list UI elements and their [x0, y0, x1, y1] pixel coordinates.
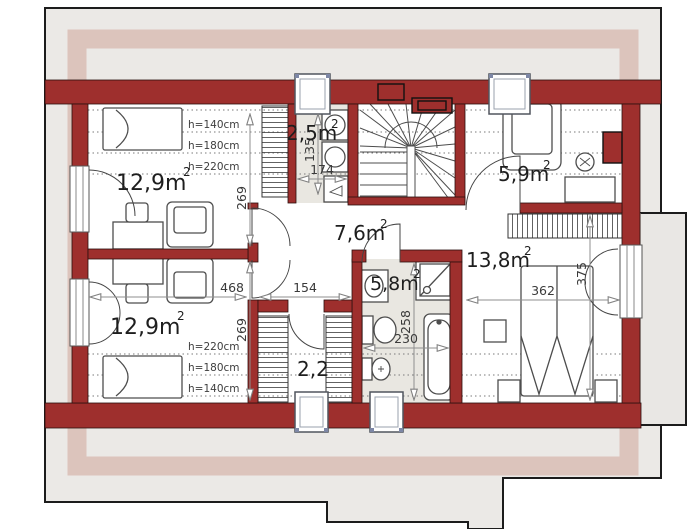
wall-bedroom-north [520, 203, 622, 213]
room-label-sup: 2 [413, 267, 421, 281]
dim-bedroom-depth: 375 [574, 262, 589, 286]
armchair-bottom [167, 258, 213, 303]
skylight-window [295, 392, 328, 432]
desk-bottom [113, 257, 163, 284]
floor-plan: 269 269 468 154 174 135 258 230 362 375 … [0, 0, 696, 529]
shower [416, 260, 454, 300]
room-label-bedroom: 13,8m [466, 248, 530, 272]
bidet [362, 358, 390, 380]
height-label: h=220cm [188, 161, 240, 173]
wall-stair-south [348, 197, 465, 205]
room-label-bathroom: 5,8m [370, 273, 419, 295]
room-label-laundry: 2,5m [286, 121, 337, 145]
chair-top [126, 203, 148, 222]
wall-bath-north-b [400, 250, 462, 262]
wardrobe-hatch [258, 316, 288, 402]
stool [484, 320, 506, 342]
dim-bedroom-width: 362 [531, 283, 555, 298]
room-label-hall: 7,6m [334, 221, 385, 245]
bathtub [424, 314, 454, 400]
room-label-sup: 2 [331, 117, 339, 131]
room-label-sup: 2 [177, 309, 185, 323]
room-label-sup: 2 [543, 158, 551, 172]
laundry-cabinet [324, 176, 348, 202]
wall-stair-east [455, 104, 465, 203]
room-label-top-right: 5,9m [498, 162, 549, 186]
wall-closet-north-b [324, 300, 352, 312]
wall-bottom [45, 403, 641, 428]
room-label-sup: 2 [183, 165, 191, 179]
wall-bath-north-a [352, 250, 366, 262]
chair-bottom [126, 284, 148, 303]
height-label: h=140cm [188, 119, 240, 131]
bed-single-top [103, 108, 182, 150]
side-table [565, 177, 615, 202]
wardrobe-hatch [262, 106, 288, 197]
wall-closet-north-a [258, 300, 288, 312]
height-label: h=180cm [188, 140, 240, 152]
room-label-bottom-left: 12,9m [110, 315, 180, 340]
wall-bath-east [450, 262, 462, 403]
bed-single-bottom [103, 356, 182, 398]
skylight-window [489, 74, 530, 114]
plant [576, 153, 594, 171]
dim-rooms-width: 468 [220, 280, 244, 295]
wall-top [45, 80, 661, 104]
wardrobe-hatch [508, 214, 622, 238]
wall-stair-west [348, 104, 358, 203]
wall-bath-west [352, 259, 362, 403]
dim-hall-width: 154 [293, 280, 317, 295]
dim-bath-width: 230 [394, 331, 418, 346]
wall-party [88, 249, 248, 259]
wardrobe-hatch [326, 316, 352, 402]
dim-room-tl-depth: 269 [234, 186, 249, 210]
height-label: h=140cm [188, 383, 240, 395]
room-label-top-left: 12,9m [116, 171, 186, 196]
desk-top [113, 222, 163, 249]
height-label: h=220cm [188, 341, 240, 353]
armchair-top [167, 202, 213, 247]
nightstand-right [595, 380, 617, 402]
height-label: h=180cm [188, 362, 240, 374]
room-label-sup: 2 [524, 244, 532, 258]
dim-laundry-width: 174 [310, 162, 334, 177]
room-label-closet: 2,2 [297, 357, 329, 381]
skylight-window [295, 74, 330, 114]
room-label-sup: 2 [380, 217, 388, 231]
wall-left [72, 104, 88, 403]
nightstand-left [498, 380, 520, 402]
dim-room-bl-depth: 269 [234, 318, 249, 342]
toilet [362, 316, 396, 344]
skylight-window [370, 392, 403, 432]
wall-laundry-west [288, 104, 296, 203]
